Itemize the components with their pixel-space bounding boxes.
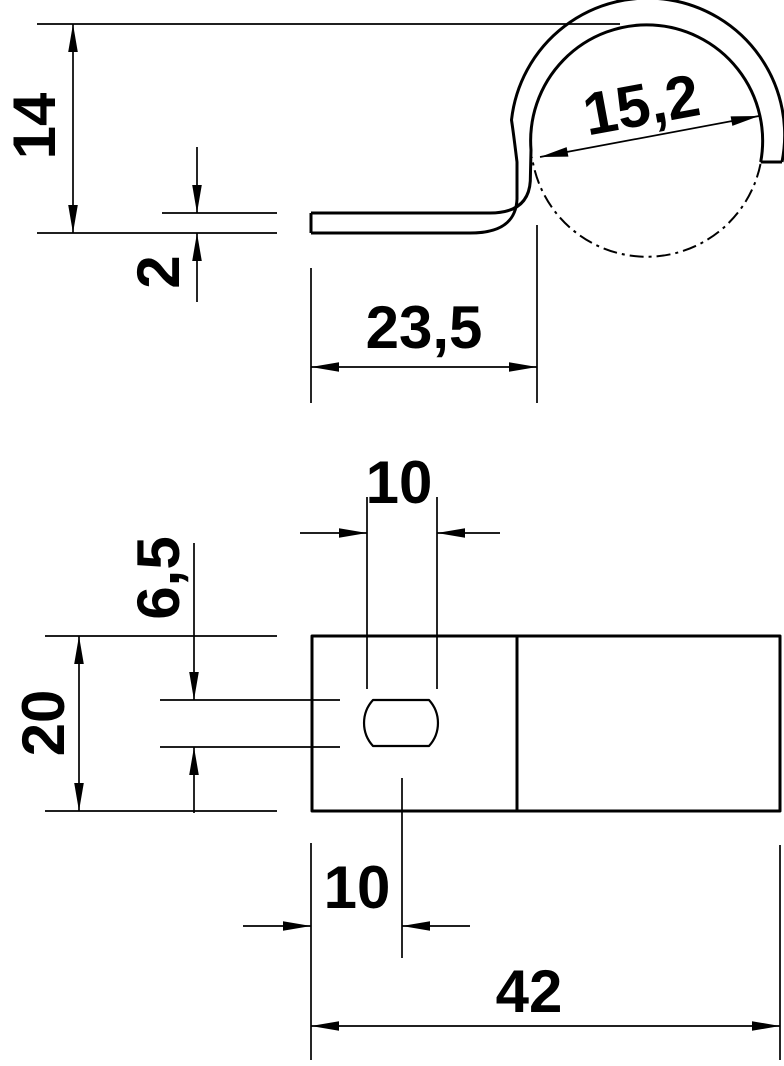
technical-drawing-page: 14 2 23,5 15,2 xyxy=(0,0,784,1066)
dimension-slot-offset: 10 xyxy=(243,778,470,1060)
dimension-value: 10 xyxy=(366,449,433,516)
clip-outer-contour xyxy=(311,0,784,233)
arrowhead xyxy=(539,147,568,162)
dimension-value: 6,5 xyxy=(125,536,192,619)
dimension-slot-length: 10 xyxy=(300,449,500,689)
dimension-value: 15,2 xyxy=(578,61,705,148)
arrowhead xyxy=(68,24,78,52)
dimension-value: 20 xyxy=(10,690,77,757)
dimension-clamp-diameter: 15,2 xyxy=(539,61,760,161)
arrowhead xyxy=(402,921,430,931)
arrowhead xyxy=(189,747,199,775)
dimension-value: 2 xyxy=(125,255,192,288)
arrowhead xyxy=(74,636,84,664)
arrowhead xyxy=(189,672,199,700)
arrowhead xyxy=(752,1021,780,1031)
dimension-value: 10 xyxy=(324,854,391,921)
dimension-value: 42 xyxy=(496,958,563,1025)
arrowhead xyxy=(68,205,78,233)
dimension-slot-width: 6,5 xyxy=(125,536,340,813)
arrowhead xyxy=(192,185,202,213)
arrowhead xyxy=(339,528,367,538)
arrowhead xyxy=(311,362,339,372)
dimension-leg-length: 23,5 xyxy=(311,225,537,403)
arrowhead xyxy=(283,921,311,931)
dimension-value: 14 xyxy=(1,92,68,159)
arrowhead xyxy=(437,528,465,538)
plate-outline xyxy=(312,636,780,811)
mounting-slot xyxy=(364,700,438,746)
arrowhead xyxy=(509,362,537,372)
pipe-centerline-arc xyxy=(532,157,761,257)
arrowhead xyxy=(74,783,84,811)
plan-view: 10 6,5 20 10 xyxy=(10,449,780,1060)
dimension-plate-width: 20 xyxy=(10,636,277,811)
arrowhead xyxy=(192,233,202,261)
drawing-canvas: 14 2 23,5 15,2 xyxy=(0,0,784,1066)
dimension-material-thickness: 2 xyxy=(125,147,277,302)
dimension-value: 23,5 xyxy=(366,294,483,361)
dimension-loop-height: 14 xyxy=(1,24,620,233)
arrowhead xyxy=(731,111,760,126)
arrowhead xyxy=(311,1021,339,1031)
side-view: 14 2 23,5 15,2 xyxy=(1,0,784,403)
